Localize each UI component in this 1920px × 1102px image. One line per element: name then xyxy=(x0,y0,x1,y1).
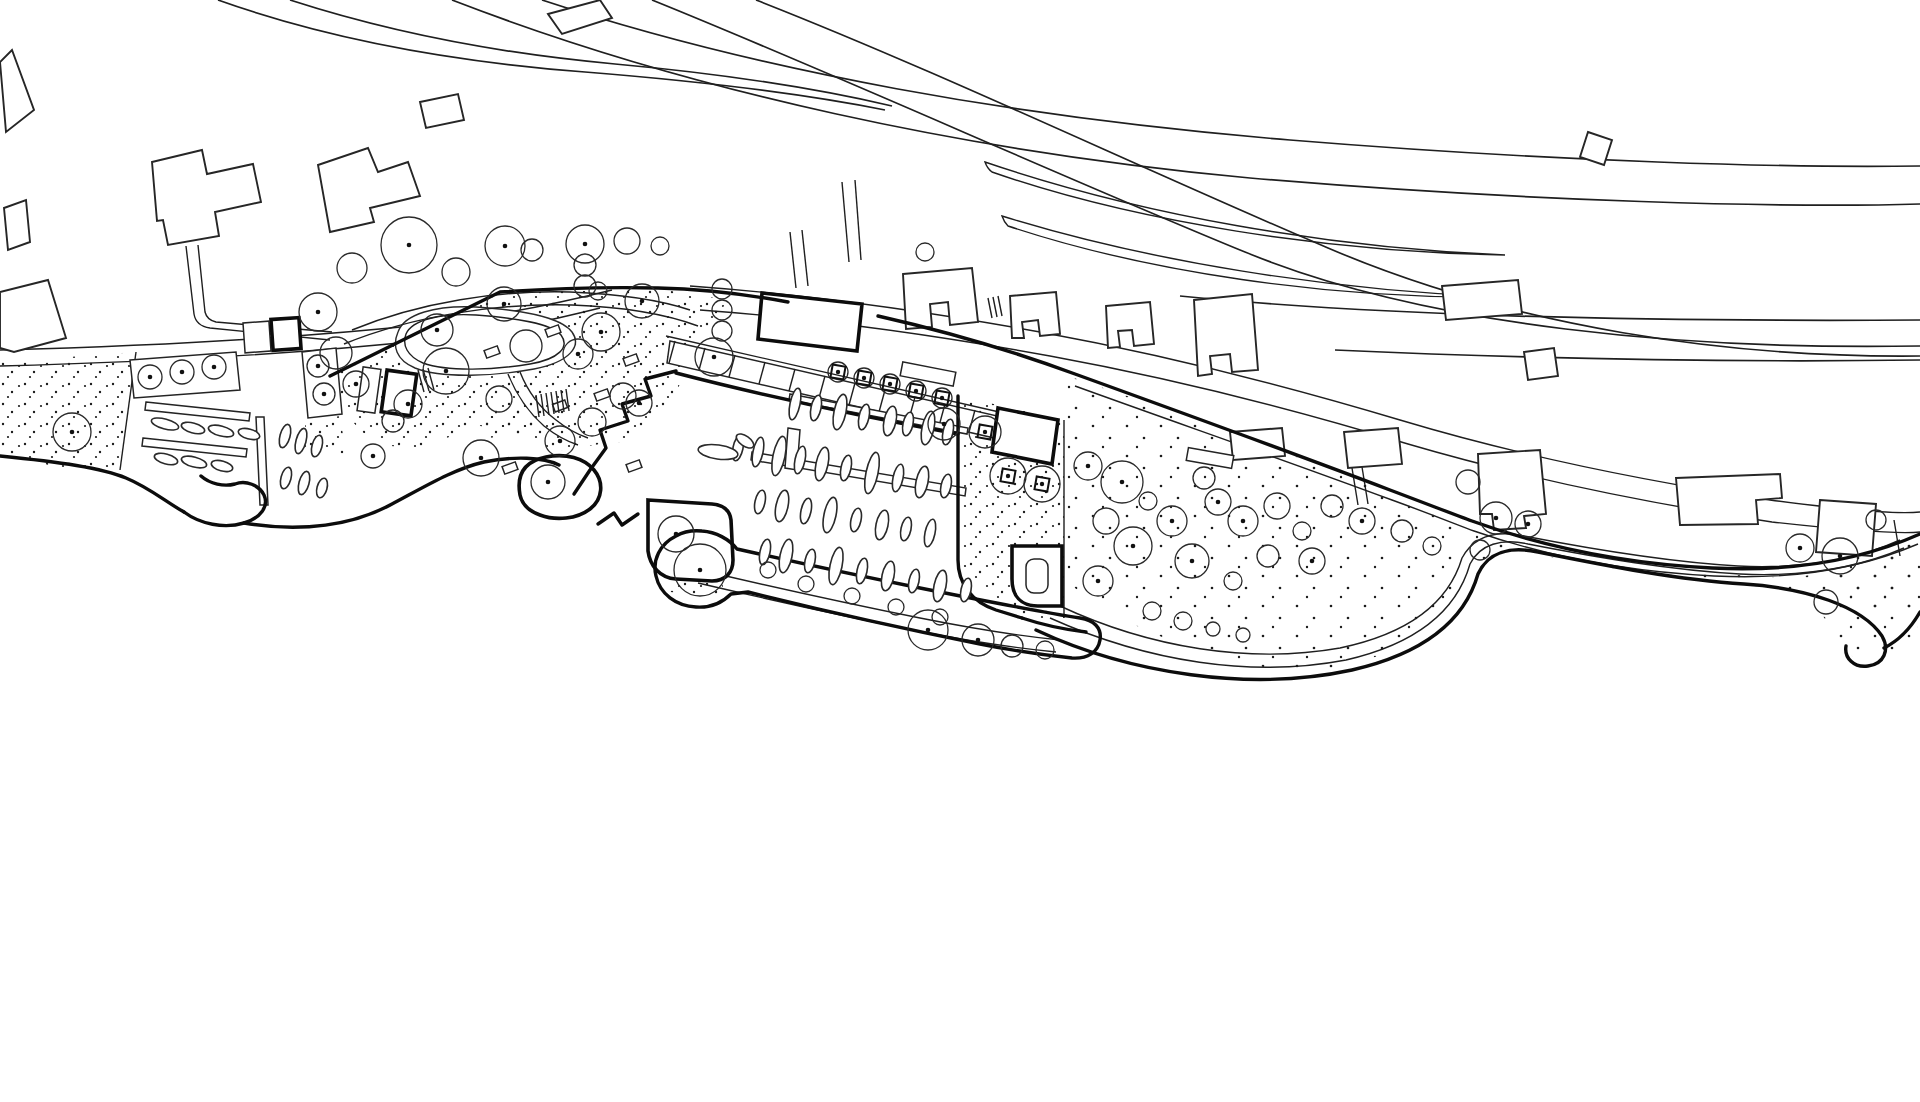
building-footprint xyxy=(1524,348,1558,380)
boat-symbol xyxy=(854,557,869,585)
tree-symbol-center-dot xyxy=(148,375,153,380)
building-footprint xyxy=(1442,280,1522,320)
bollard-circle xyxy=(916,243,934,261)
tree-symbol-center-dot xyxy=(406,402,411,407)
boat-symbol xyxy=(293,427,309,455)
street-line xyxy=(198,245,332,332)
bollard-circle xyxy=(844,588,860,604)
stair-hatch xyxy=(993,297,997,317)
tree-symbol-center-dot xyxy=(354,382,359,387)
boat-symbol xyxy=(757,538,772,566)
tree-symbol-center-dot xyxy=(212,365,217,370)
boat-symbol xyxy=(180,454,208,470)
bench xyxy=(502,462,518,474)
street-line xyxy=(802,230,808,286)
boat-symbol xyxy=(777,538,796,574)
tree-symbol-center-dot xyxy=(1170,519,1175,524)
site-plan xyxy=(0,0,1920,1102)
tree-symbol xyxy=(442,258,470,286)
kiosk xyxy=(271,318,301,351)
boat-symbol xyxy=(180,420,206,436)
tree-symbol-center-dot xyxy=(180,370,185,375)
quay-edge xyxy=(184,476,265,526)
stair-hatch xyxy=(998,296,1002,316)
planter-tree-symbol-center-dot xyxy=(836,370,840,374)
tree-symbol-center-dot xyxy=(583,242,588,247)
boat-symbol xyxy=(773,489,791,523)
planter-tree-symbol-center-dot xyxy=(862,376,866,380)
building-footprint xyxy=(1106,302,1154,348)
street-line xyxy=(790,232,796,288)
planter-tree-symbol-center-dot xyxy=(940,396,944,400)
tree-symbol-center-dot xyxy=(942,422,947,427)
boat-symbol xyxy=(315,477,330,499)
tree-symbol-center-dot xyxy=(407,243,412,248)
planter-tree-symbol-center-dot xyxy=(1006,474,1010,478)
tree-symbol-center-dot xyxy=(1086,464,1091,469)
tree-symbol-center-dot xyxy=(1190,559,1195,564)
boat-symbol xyxy=(907,568,922,594)
quay-platform xyxy=(648,500,733,581)
boat-symbol xyxy=(873,509,891,541)
tree-symbol-center-dot xyxy=(712,355,717,360)
tree-symbol-center-dot xyxy=(546,480,551,485)
gravel-surface xyxy=(302,416,346,454)
boat-symbol xyxy=(787,387,803,420)
tree-symbol-center-dot xyxy=(576,352,581,357)
boat-symbol xyxy=(890,463,906,492)
tree-symbol-center-dot xyxy=(637,401,642,406)
tree-symbol-center-dot xyxy=(1798,546,1803,551)
railway-line xyxy=(542,0,1920,166)
bench xyxy=(626,460,642,472)
street-line xyxy=(842,182,849,262)
kiosk xyxy=(243,321,271,353)
boat-symbol xyxy=(879,560,897,592)
railway-line xyxy=(452,0,1920,205)
tree-symbol xyxy=(337,253,367,283)
tree-symbol xyxy=(1456,470,1480,494)
tree-symbol-center-dot xyxy=(1241,519,1246,524)
stair-hatch xyxy=(988,298,992,318)
boat-symbol xyxy=(803,548,818,574)
boat-symbol xyxy=(296,470,312,496)
boat-symbol xyxy=(277,423,293,449)
tree-symbol-center-dot xyxy=(479,456,484,461)
building-footprint xyxy=(420,94,464,128)
boat-symbol xyxy=(798,497,813,525)
tree-symbol-center-dot xyxy=(1096,579,1101,584)
boat-symbol xyxy=(813,446,832,482)
building-footprint xyxy=(903,268,978,329)
site-plan-svg xyxy=(0,0,1920,1102)
boat-symbol xyxy=(913,465,931,499)
harbor-building xyxy=(992,408,1058,464)
boat-symbol xyxy=(207,423,235,439)
tree-symbol-center-dot xyxy=(1494,516,1499,521)
boat-symbol xyxy=(820,496,839,534)
kiosk xyxy=(1026,559,1048,593)
tree-symbol-center-dot xyxy=(1120,480,1125,485)
tree-symbol-center-dot xyxy=(1838,554,1843,559)
planter-tree-symbol-center-dot xyxy=(983,430,987,434)
buildings xyxy=(0,0,1876,556)
bench xyxy=(900,362,956,386)
tree-symbol-center-dot xyxy=(1216,500,1221,505)
tree-symbol-center-dot xyxy=(435,328,440,333)
building-footprint xyxy=(1816,500,1876,556)
railway-line xyxy=(652,0,1920,346)
tree-symbol-center-dot xyxy=(371,454,376,459)
boat-symbol xyxy=(210,458,234,473)
boat-symbol xyxy=(826,546,846,586)
tree-symbol-center-dot xyxy=(503,244,508,249)
tree-symbol-center-dot xyxy=(558,439,563,444)
boat-symbol xyxy=(931,569,949,603)
building-footprint xyxy=(318,148,420,232)
boat-symbol xyxy=(939,473,954,499)
tree-symbol xyxy=(574,254,596,276)
planter-tree-symbol-center-dot xyxy=(1040,482,1044,486)
building-footprint xyxy=(0,280,66,352)
street-line xyxy=(855,180,861,260)
bollard-circle xyxy=(760,562,776,578)
tree-symbol-center-dot xyxy=(1310,559,1315,564)
railway-line xyxy=(1180,296,1920,320)
boat-symbol xyxy=(922,518,938,547)
boat-symbol xyxy=(697,442,739,461)
planter-tree-symbol-center-dot xyxy=(914,389,918,393)
tree-symbol-center-dot xyxy=(640,299,645,304)
building-footprint xyxy=(1344,428,1402,468)
tree-symbol-center-dot xyxy=(674,532,679,537)
boat-symbol xyxy=(753,489,768,515)
harbor-building xyxy=(758,293,862,351)
tree-symbol-center-dot xyxy=(1526,522,1531,527)
tree-symbol-center-dot xyxy=(698,568,703,573)
boat-symbol xyxy=(153,451,179,467)
gravel-surface xyxy=(0,352,136,470)
boat-symbol xyxy=(150,416,180,433)
tree-symbol-center-dot xyxy=(599,330,604,335)
planter-tree-symbol-center-dot xyxy=(888,382,892,386)
boat-symbol xyxy=(849,507,864,533)
track-merges xyxy=(985,162,1505,297)
tree-symbol-center-dot xyxy=(70,430,75,435)
boat-symbol xyxy=(899,516,914,542)
park-surface xyxy=(1064,376,1468,672)
tree-symbol-center-dot xyxy=(926,628,931,633)
tree-symbol-center-dot xyxy=(502,302,507,307)
quay-edge xyxy=(598,513,638,525)
boat-symbol xyxy=(278,466,293,490)
tree-symbol xyxy=(651,237,669,255)
building-footprint xyxy=(152,150,261,245)
bollard-circle xyxy=(798,576,814,592)
building-footprint xyxy=(1194,294,1258,376)
building-footprint xyxy=(4,200,30,250)
building-footprint xyxy=(1676,474,1782,525)
tree-symbol-center-dot xyxy=(316,364,321,369)
tree-symbol xyxy=(614,228,640,254)
tree-symbol-center-dot xyxy=(322,392,327,397)
tree-symbol-center-dot xyxy=(1131,544,1136,549)
tree-symbol-center-dot xyxy=(1360,519,1365,524)
plan-layers-root xyxy=(0,0,1920,679)
tree-symbol-center-dot xyxy=(444,369,449,374)
tree-symbol-center-dot xyxy=(316,310,321,315)
building-footprint xyxy=(0,50,34,132)
tree-symbol-center-dot xyxy=(976,638,981,643)
